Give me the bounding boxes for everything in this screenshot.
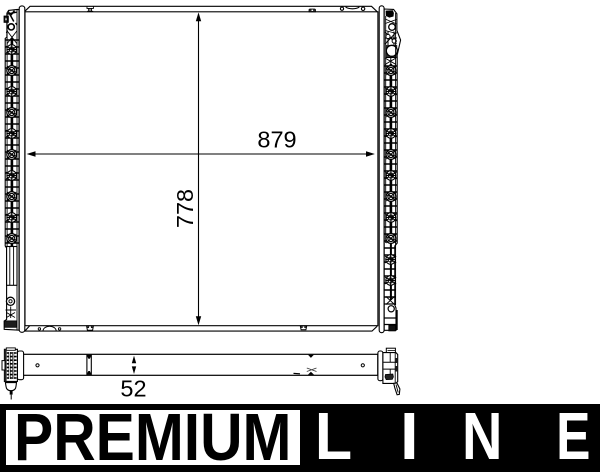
svg-text:52: 52 bbox=[120, 376, 146, 402]
svg-text:879: 879 bbox=[257, 127, 296, 153]
svg-text:778: 778 bbox=[172, 189, 198, 228]
